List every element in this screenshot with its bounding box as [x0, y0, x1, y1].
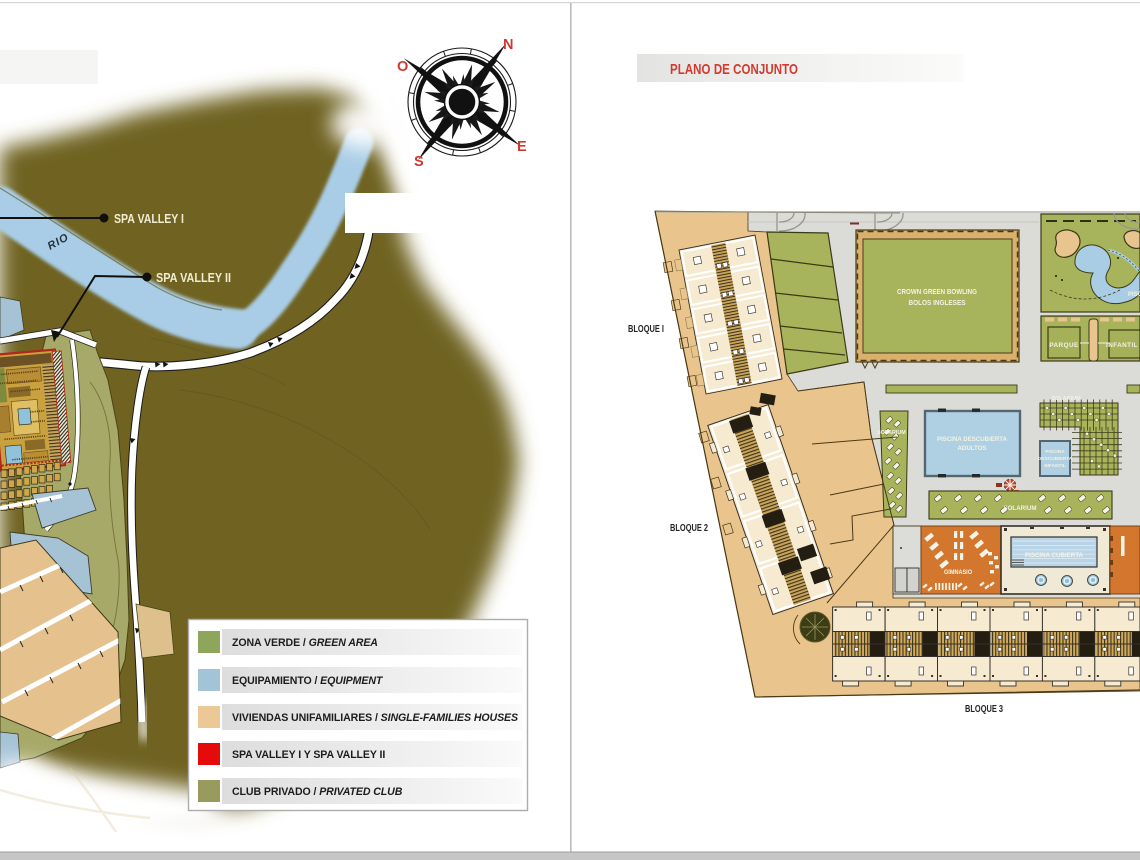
svg-text:INFANTIL: INFANTIL: [1044, 463, 1066, 469]
svg-text:BLOQUE 2: BLOQUE 2: [670, 523, 708, 534]
svg-text:BLOQUE I: BLOQUE I: [628, 324, 664, 335]
svg-text:PISCINA: PISCINA: [1045, 449, 1065, 455]
svg-text:GIMNASIO: GIMNASIO: [944, 569, 972, 576]
svg-text:CROWN GREEN BOWLING: CROWN GREEN BOWLING: [897, 289, 977, 296]
svg-text:SOLARIUM: SOLARIUM: [877, 430, 906, 436]
svg-text:SPA VALLEY I: SPA VALLEY I: [114, 212, 184, 226]
svg-text:INFANTIL: INFANTIL: [1106, 342, 1138, 349]
svg-text:PLANO DE CONJUNTO: PLANO DE CONJUNTO: [670, 62, 798, 78]
svg-text:EQUIPAMIENTO / EQUIPMENT: EQUIPAMIENTO / EQUIPMENT: [232, 675, 384, 687]
svg-text:SPA VALLEY II: SPA VALLEY II: [156, 271, 231, 285]
svg-text:SOLARIUM: SOLARIUM: [1004, 505, 1037, 512]
svg-text:S: S: [414, 154, 424, 170]
svg-text:ADULTOS: ADULTOS: [958, 445, 987, 452]
svg-text:N: N: [503, 37, 513, 53]
svg-text:VIVIENDAS UNIFAMILIARES / SING: VIVIENDAS UNIFAMILIARES / SINGLE-FAMILIE…: [232, 712, 518, 724]
svg-text:ZONA VERDE / GREEN AREA: ZONA VERDE / GREEN AREA: [232, 637, 378, 649]
svg-text:BOLOS INGLESES: BOLOS INGLESES: [909, 300, 966, 307]
svg-text:SOLARIUM: SOLARIUM: [1051, 396, 1081, 402]
svg-text:E: E: [517, 139, 527, 155]
svg-text:SPA VALLEY I Y SPA VALLEY II: SPA VALLEY I Y SPA VALLEY II: [232, 749, 385, 761]
svg-text:BLOQUE 3: BLOQUE 3: [965, 704, 1003, 715]
svg-text:O: O: [397, 59, 408, 75]
svg-text:CLUB PRIVADO / PRIVATED CLUB: CLUB PRIVADO / PRIVATED CLUB: [232, 786, 403, 798]
svg-text:PARQUE: PARQUE: [1049, 342, 1079, 349]
svg-text:PISCINA CUBIERTA: PISCINA CUBIERTA: [1025, 552, 1083, 559]
svg-text:DESCUBIERTA: DESCUBIERTA: [1038, 456, 1073, 462]
svg-text:PISCINA DESCUBIERTA: PISCINA DESCUBIERTA: [937, 436, 1007, 443]
svg-text:PISCI: PISCI: [1128, 292, 1140, 298]
